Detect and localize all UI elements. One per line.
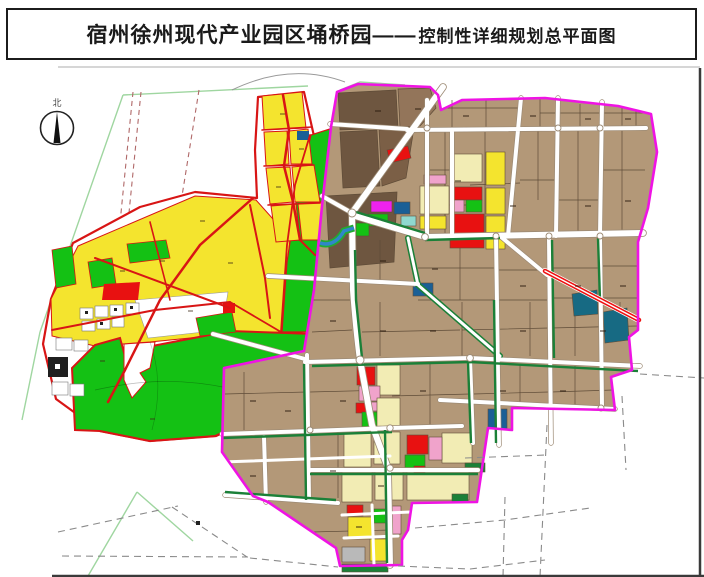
survey-point-dot xyxy=(196,521,200,525)
compass-icon: 北 xyxy=(41,98,74,145)
small-blue-parcel xyxy=(297,131,309,140)
title-box: 宿州徐州现代产业园区埇桥园—— 控制性详细规划总平面图 xyxy=(6,8,697,60)
parcel-magenta xyxy=(371,201,392,212)
title-main: 宿州徐州现代产业园区埇桥园—— xyxy=(87,19,417,49)
title-sub: 控制性详细规划总平面图 xyxy=(419,22,617,47)
black-parcel-mark xyxy=(55,364,60,369)
map-canvas: 北 xyxy=(0,0,704,577)
planning-map-page: 北 宿州徐州现代产业园区埇桥园—— 控制性详细规划总平面图 xyxy=(0,0,704,577)
north-label: 北 xyxy=(52,98,61,108)
red-parcel xyxy=(102,282,140,300)
